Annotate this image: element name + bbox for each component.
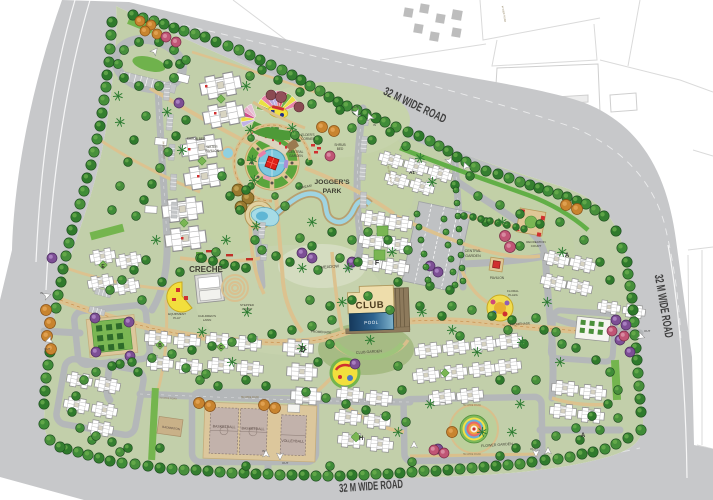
- svg-text:BED: BED: [337, 147, 344, 151]
- svg-text:F: F: [375, 260, 380, 267]
- svg-text:H: H: [359, 436, 363, 442]
- svg-text:IN: IN: [40, 291, 43, 295]
- svg-text:PLAY: PLAY: [173, 316, 180, 320]
- svg-text:PLAZA: PLAZA: [508, 293, 518, 297]
- svg-text:COURT: COURT: [531, 244, 542, 248]
- svg-text:CORNER: CORNER: [301, 137, 316, 141]
- svg-text:LAWN: LAWN: [203, 318, 212, 322]
- svg-text:PAVILION: PAVILION: [490, 276, 505, 280]
- svg-text:PAVILION: PAVILION: [205, 149, 220, 153]
- svg-text:A: A: [565, 253, 570, 259]
- svg-text:5M WIDE ROAD: 5M WIDE ROAD: [241, 396, 259, 399]
- svg-text:5M WIDE ROAD: 5M WIDE ROAD: [463, 404, 481, 407]
- svg-text:PARK: PARK: [323, 188, 342, 195]
- svg-text:OUT: OUT: [530, 447, 537, 451]
- svg-text:IN: IN: [262, 449, 265, 453]
- svg-text:B: B: [158, 343, 162, 349]
- svg-text:C: C: [219, 345, 223, 351]
- svg-text:CENTRAL: CENTRAL: [465, 249, 482, 253]
- svg-text:A1: A1: [409, 170, 415, 175]
- svg-text:BASKETBALL: BASKETBALL: [213, 424, 236, 429]
- svg-text:OUT: OUT: [44, 347, 51, 351]
- svg-text:COURT: COURT: [242, 307, 253, 311]
- svg-text:VOLLEYBALL: VOLLEYBALL: [281, 439, 304, 444]
- svg-text:POOL: POOL: [364, 320, 379, 326]
- svg-text:CRECHE: CRECHE: [189, 265, 223, 274]
- svg-text:OUT: OUT: [352, 105, 359, 109]
- svg-text:D: D: [300, 345, 306, 354]
- svg-text:GARDEN: GARDEN: [289, 154, 303, 158]
- svg-text:JOGGER'S: JOGGER'S: [314, 179, 350, 186]
- svg-text:A: A: [581, 433, 586, 439]
- svg-text:IN: IN: [373, 123, 376, 127]
- svg-text:CLUB: CLUB: [356, 300, 385, 312]
- svg-text:5M WIDE ROAD: 5M WIDE ROAD: [463, 453, 481, 456]
- svg-text:GARDEN: GARDEN: [465, 254, 481, 258]
- svg-text:BASKETBALL: BASKETBALL: [241, 426, 264, 431]
- svg-text:OUT: OUT: [282, 461, 289, 465]
- svg-text:SHRUB BED: SHRUB BED: [187, 137, 206, 141]
- svg-text:OUT: OUT: [644, 329, 651, 333]
